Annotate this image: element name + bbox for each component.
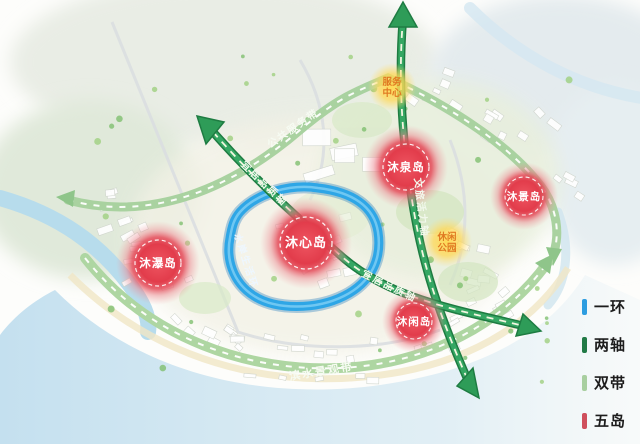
legend-label-islands: 五岛 <box>594 410 626 431</box>
legend-swatch-ring <box>582 299 587 315</box>
node-service-center: 服务 中心 <box>368 63 416 111</box>
node-leisure-park: 休闲 公园 <box>422 217 472 267</box>
island-xin: 沐心岛 <box>260 197 352 289</box>
legend-label-ring: 一环 <box>594 296 626 317</box>
legend-swatch-belts <box>582 375 587 391</box>
legend-item-ring: 一环 <box>582 296 626 317</box>
leisure-park-label-line2: 公园 <box>437 243 456 254</box>
island-pu-label: 沐瀑岛 <box>139 256 177 270</box>
island-xin-label: 沐心岛 <box>285 235 327 251</box>
island-xian-label: 沐闲岛 <box>397 315 432 328</box>
service-center-label-line1: 服务 <box>382 76 402 88</box>
legend: 一环 两轴 双带 五岛 <box>582 296 626 431</box>
legend-swatch-axes <box>582 337 587 353</box>
island-quan: 沐泉岛 <box>364 125 448 209</box>
island-jing-label: 沐景岛 <box>507 190 542 203</box>
legend-label-belts: 双带 <box>594 372 626 393</box>
legend-item-islands: 五岛 <box>582 410 626 431</box>
legend-item-axes: 两轴 <box>582 334 626 355</box>
island-jing: 沐景岛 <box>490 162 558 230</box>
map-canvas: 服务 中心 休闲 公园 沐瀑岛 沐心岛 沐泉岛 沐景岛 沐闲岛 文旅活力轴 宜居… <box>0 0 640 444</box>
legend-item-belts: 双带 <box>582 372 626 393</box>
planning-map: 服务 中心 休闲 公园 沐瀑岛 沐心岛 沐泉岛 沐景岛 沐闲岛 文旅活力轴 宜居… <box>0 0 640 444</box>
legend-label-axes: 两轴 <box>594 334 626 355</box>
island-pu: 沐瀑岛 <box>116 221 200 305</box>
legend-swatch-islands <box>582 413 587 429</box>
leisure-park-label-line1: 休闲 <box>436 231 456 243</box>
island-quan-label: 沐泉岛 <box>387 160 425 174</box>
service-center-label-line2: 中心 <box>382 87 402 99</box>
